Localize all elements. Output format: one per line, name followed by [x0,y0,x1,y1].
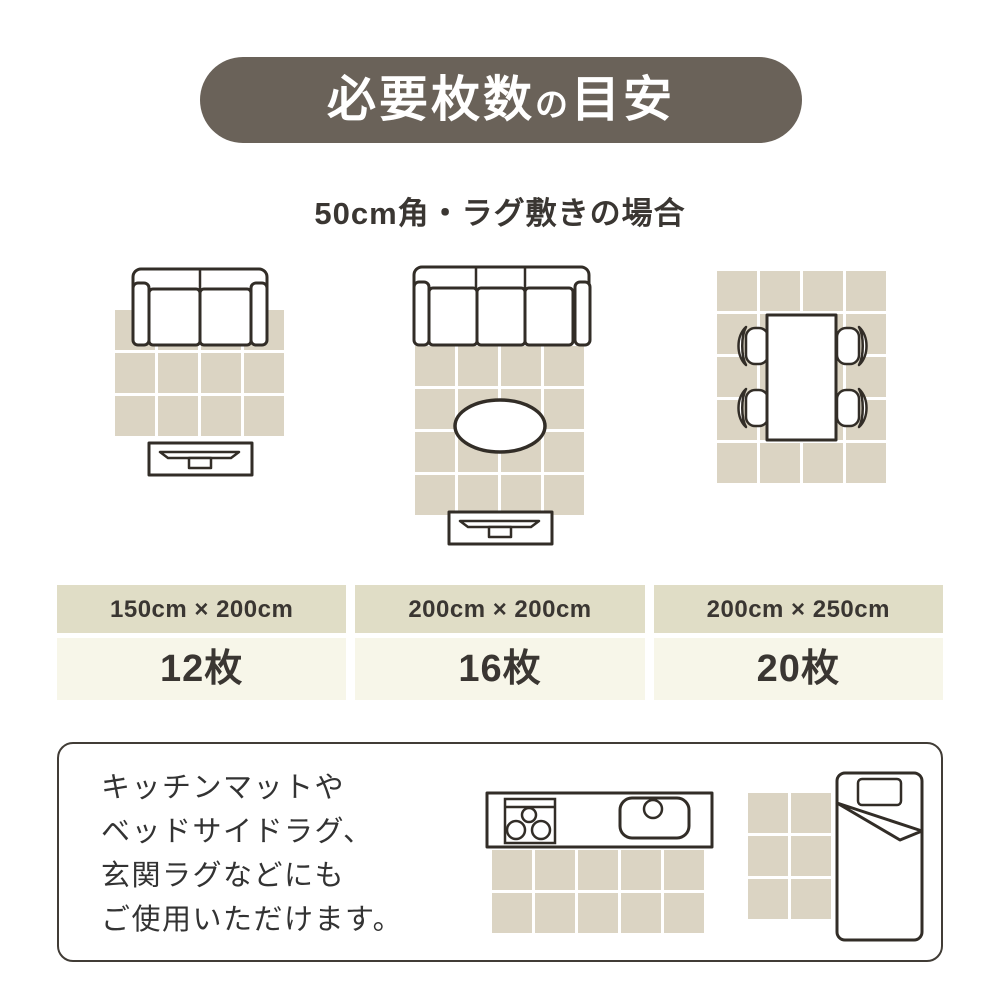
infographic-page: 必要枚数の目安 50cm角・ラグ敷きの場合 [0,0,1000,1000]
chair-icon [739,389,769,427]
illustration-living-3seat [405,262,595,552]
note-box: キッチンマットや ベッドサイドラグ、 玄関ラグなどにも ご使用いただけます。 [57,742,943,962]
tv-stand-icon [449,512,552,544]
page-title-rest: 目安 [571,73,675,127]
chair-icon [837,389,867,427]
illustration-living-2seat [110,262,292,480]
size-header: 200cm × 250cm [654,585,943,633]
sofa-icon [414,267,590,345]
piece-count: 16枚 [355,638,644,700]
illustration-bedside [745,768,930,948]
page-title: 必要枚数の目安 [327,76,675,125]
illustration-kitchen [485,790,715,940]
dining-table-icon [767,315,836,440]
note-text: キッチンマットや ベッドサイドラグ、 玄関ラグなどにも ご使用いただけます。 [101,766,403,942]
chair-icon [837,327,867,365]
bed-icon [837,773,922,940]
size-column: 150cm × 200cm 12枚 [57,585,346,700]
tv-stand-icon [149,443,252,475]
subtitle: 50cm角・ラグ敷きの場合 [0,188,1000,233]
piece-count: 12枚 [57,638,346,700]
size-column: 200cm × 200cm 16枚 [355,585,644,700]
page-title-main: 必要枚数 [327,73,535,127]
note-line: ご使用いただけます。 [101,898,403,942]
pillow-icon [858,779,901,805]
size-header: 200cm × 200cm [355,585,644,633]
note-line: キッチンマットや [101,766,403,810]
sink-icon [620,798,689,838]
page-title-badge: 必要枚数の目安 [200,57,802,143]
piece-count: 20枚 [654,638,943,700]
rug-grid-kitchen [492,850,704,933]
illustration-dining [712,266,902,488]
page-title-particle: の [535,86,571,123]
size-header: 150cm × 200cm [57,585,346,633]
size-column: 200cm × 250cm 20枚 [654,585,943,700]
sofa-icon [133,269,267,345]
note-line: 玄関ラグなどにも [101,854,403,898]
size-table: 150cm × 200cm 12枚 200cm × 200cm 16枚 200c… [57,585,943,700]
coffee-table-icon [455,400,545,452]
chair-icon [739,327,769,365]
note-line: ベッドサイドラグ、 [101,810,403,854]
rug-grid-bedside [748,793,831,919]
